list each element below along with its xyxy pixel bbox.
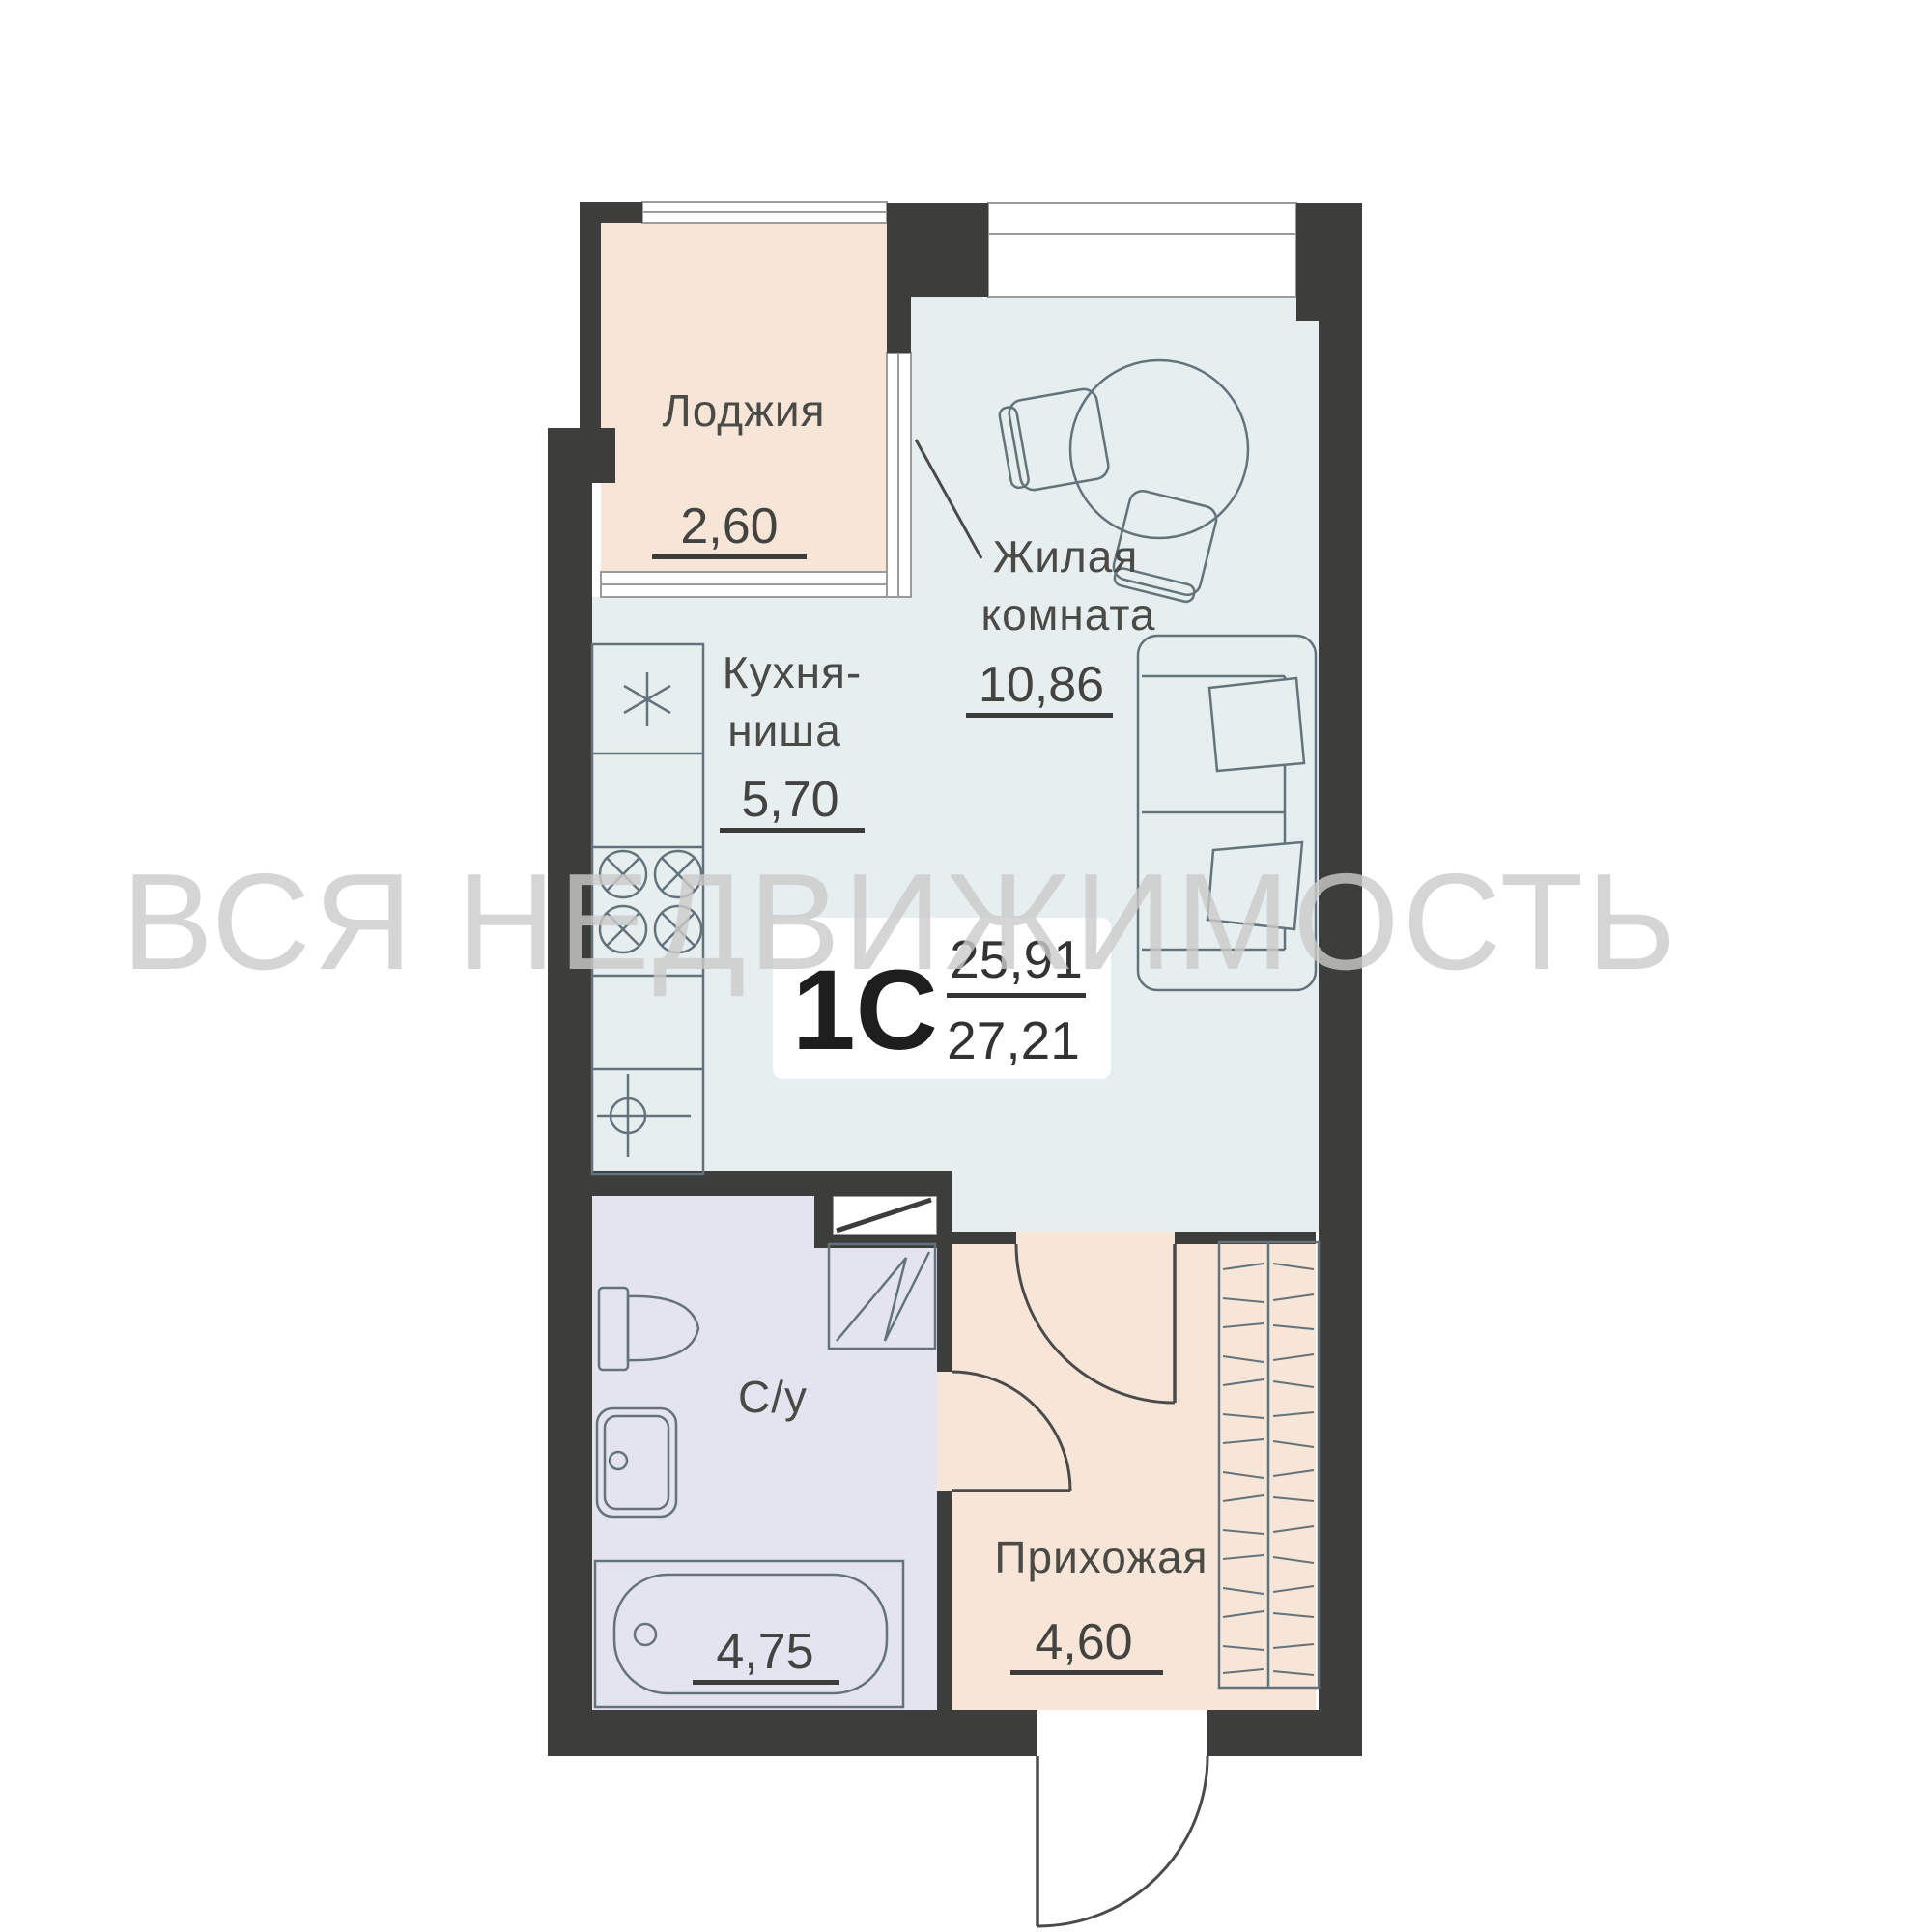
entrance-door-arc-icon <box>1037 1756 1207 1926</box>
kitchen-label-line1: Кухня- <box>723 647 862 697</box>
kitchen-label-line2: ниша <box>727 705 841 755</box>
door-niche <box>833 1196 937 1235</box>
bottom-wall <box>548 1710 1037 1756</box>
hallway-top-wall <box>952 1232 1016 1244</box>
floor-plan-canvas: Лоджия 2,60 Кухня- ниша 5,70 Жилая комна… <box>0 0 1932 1932</box>
hallway-area: 4,60 <box>1035 1614 1132 1670</box>
total-area: 27,21 <box>947 1010 1080 1070</box>
left-wall <box>548 428 592 1756</box>
living-room-window-icon <box>988 203 1296 297</box>
living-label-line1: Жилая <box>993 531 1139 582</box>
living-label-line2: комната <box>981 589 1156 639</box>
loggia-area: 2,60 <box>680 498 778 554</box>
loggia-divider-wall <box>887 203 911 353</box>
bathroom-right-wall <box>937 1171 952 1372</box>
bathroom-doorway-gap <box>937 1372 952 1491</box>
loggia-label: Лоджия <box>663 385 826 436</box>
living-area: 10,86 <box>979 657 1104 713</box>
pillow-icon <box>1209 678 1304 771</box>
loggia-left-wall <box>580 202 601 430</box>
hallway-label: Прихожая <box>994 1532 1207 1582</box>
watermark: ВСЯ НЕДВИЖИМОСТЬ <box>122 854 1679 991</box>
bathroom-label: С/у <box>738 1372 808 1422</box>
kitchen-area: 5,70 <box>741 772 838 828</box>
bathroom-area: 4,75 <box>716 1624 813 1680</box>
hallway-floor <box>952 1220 1316 1710</box>
